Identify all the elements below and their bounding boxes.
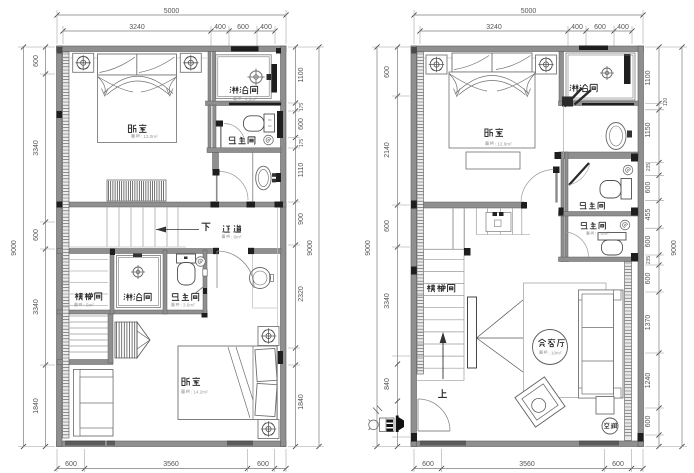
svg-text:: 13.0m²: : 13.0m² xyxy=(141,134,158,139)
svg-text:2140: 2140 xyxy=(384,142,391,158)
svg-text:1840: 1840 xyxy=(33,398,40,414)
svg-text:400: 400 xyxy=(260,24,272,31)
svg-text:9000: 9000 xyxy=(671,240,678,256)
svg-text:3560: 3560 xyxy=(163,461,179,468)
svg-text:1100: 1100 xyxy=(298,67,305,82)
svg-text:9000: 9000 xyxy=(365,240,372,256)
svg-text:600: 600 xyxy=(298,118,305,130)
svg-text:600: 600 xyxy=(384,66,391,78)
svg-text:5000: 5000 xyxy=(521,8,537,15)
svg-text:1150: 1150 xyxy=(645,122,652,137)
svg-text:: 4.8m²: : 4.8m² xyxy=(242,96,257,101)
svg-text:: 12.6m²: : 12.6m² xyxy=(495,141,512,146)
svg-text:840: 840 xyxy=(384,378,391,390)
svg-text:2320: 2320 xyxy=(298,286,305,302)
svg-text:3560: 3560 xyxy=(519,461,535,468)
svg-text:5000: 5000 xyxy=(164,8,180,15)
svg-text:9000: 9000 xyxy=(307,240,314,256)
svg-text:1110: 1110 xyxy=(298,163,305,178)
svg-text:600: 600 xyxy=(645,182,652,194)
svg-text:600: 600 xyxy=(645,416,652,428)
svg-text:600: 600 xyxy=(33,229,40,241)
svg-text:3340: 3340 xyxy=(33,140,40,156)
svg-text:: 10m²: : 10m² xyxy=(548,350,561,355)
svg-text:175: 175 xyxy=(299,103,305,112)
svg-text:600: 600 xyxy=(237,24,249,31)
svg-text:600: 600 xyxy=(594,24,606,31)
svg-text:175: 175 xyxy=(299,139,305,148)
svg-text:: 6m²: : 6m² xyxy=(231,234,242,239)
svg-text:3340: 3340 xyxy=(384,293,391,309)
svg-text:400: 400 xyxy=(617,24,629,31)
svg-text:1100: 1100 xyxy=(645,70,652,85)
svg-text:: 3.6m²: : 3.6m² xyxy=(180,303,195,308)
svg-text:1840: 1840 xyxy=(298,394,305,410)
svg-text:600: 600 xyxy=(384,220,391,232)
svg-text:400: 400 xyxy=(571,24,583,31)
svg-text:600: 600 xyxy=(645,236,652,248)
svg-text:400: 400 xyxy=(214,24,226,31)
svg-text:600: 600 xyxy=(612,461,624,468)
svg-text:1370: 1370 xyxy=(645,315,652,331)
svg-text:600: 600 xyxy=(257,461,269,468)
svg-text:3340: 3340 xyxy=(33,299,40,315)
svg-text:900: 900 xyxy=(298,213,305,225)
svg-text:120: 120 xyxy=(663,98,669,107)
svg-text:235: 235 xyxy=(646,256,652,265)
svg-text:3240: 3240 xyxy=(129,24,145,31)
svg-text:600: 600 xyxy=(65,461,77,468)
svg-text:235: 235 xyxy=(646,163,652,172)
svg-text:9000: 9000 xyxy=(11,240,18,256)
svg-text:1240: 1240 xyxy=(645,373,652,389)
svg-text:: 14.2m²: : 14.2m² xyxy=(191,390,208,395)
svg-text:455: 455 xyxy=(645,209,652,221)
svg-text:: 5m²: : 5m² xyxy=(83,303,94,308)
svg-text:600: 600 xyxy=(33,55,40,67)
svg-text:600: 600 xyxy=(645,273,652,285)
svg-text:600: 600 xyxy=(422,461,434,468)
svg-text:: 1.6m²: : 1.6m² xyxy=(595,231,610,236)
svg-text:3240: 3240 xyxy=(486,24,502,31)
